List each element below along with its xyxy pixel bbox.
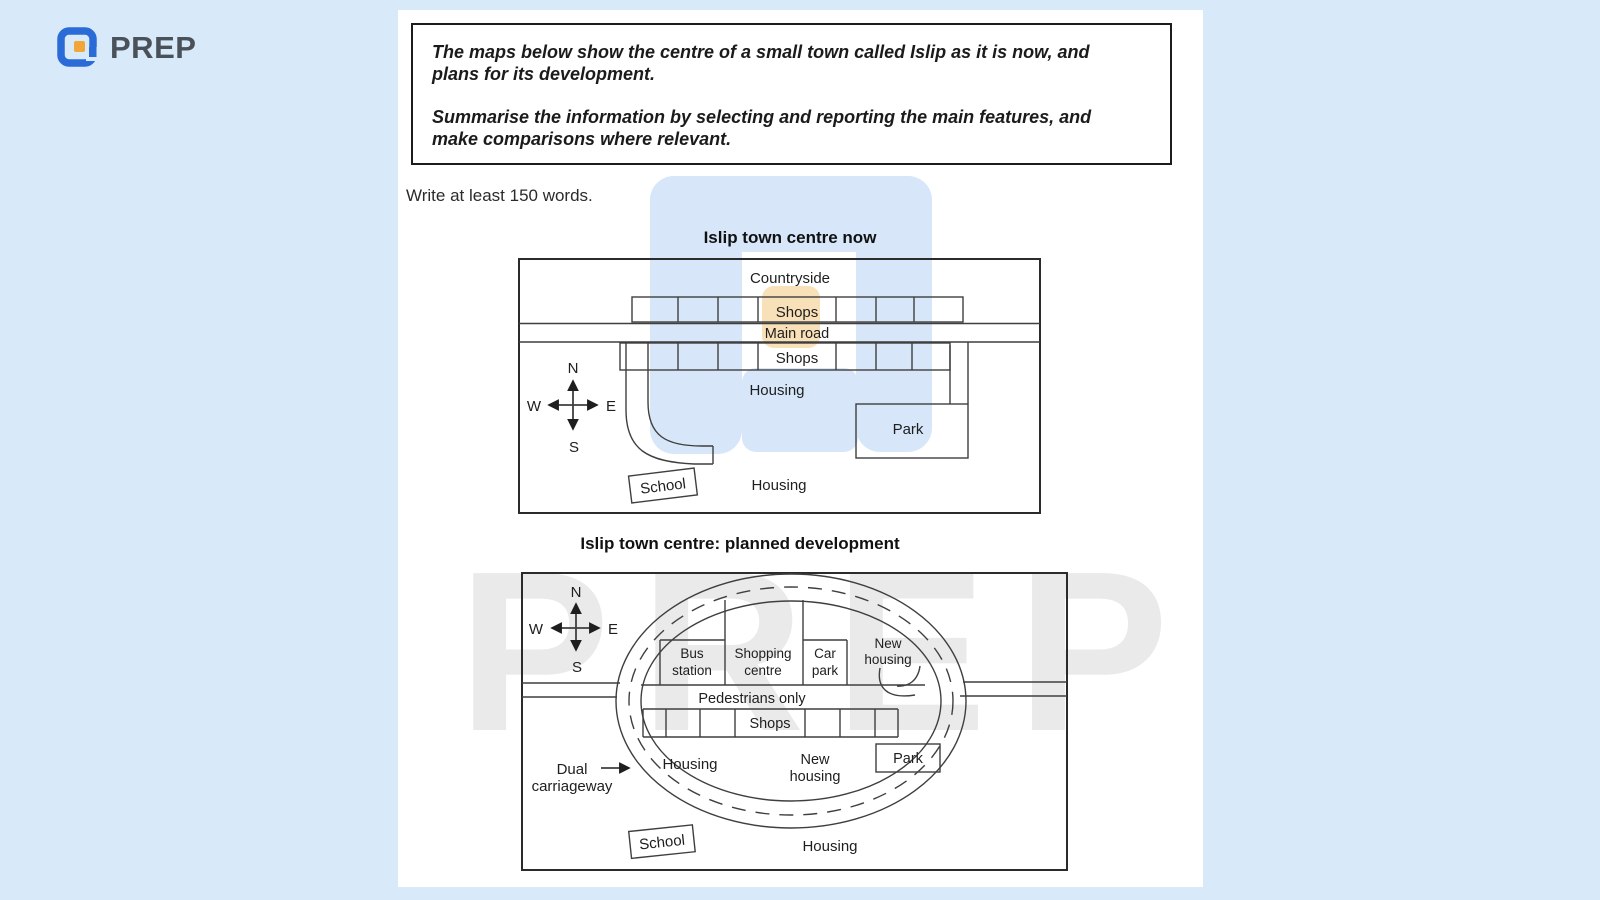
prompt-line: plans for its development. [432,63,1148,85]
brand-logo[interactable]: PREP [56,26,196,70]
pedestrians-only-label: Pedestrians only [698,691,806,707]
dual-carriageway-label: carriageway [532,778,613,795]
map-now-figure: Countryside Shops Main road Shops Park S… [505,250,1055,520]
new-housing-north-label: housing [864,652,911,667]
school-building: School [629,825,695,859]
compass-s: S [572,659,582,676]
housing-label: Housing [662,756,717,773]
shopping-centre-label: Shopping [734,646,791,661]
compass-n: N [568,360,579,377]
park-label: Park [893,751,924,767]
prompt-line: make comparisons where relevant. [432,128,1148,150]
housing-south-label: Housing [802,838,857,855]
bus-station-label: Bus [680,646,704,661]
shops-south-label: Shops [776,350,819,367]
curved-side-road [626,342,713,464]
countryside-label: Countryside [750,270,830,287]
map-now-title: Islip town centre now [704,228,877,248]
task-prompt-box: The maps below show the centre of a smal… [411,23,1172,165]
compass-e: E [608,621,618,638]
bus-station-label: station [672,663,712,678]
new-housing-south-label: housing [790,769,841,785]
housing-mid-label: Housing [749,382,804,399]
school-label: School [638,832,685,854]
logo-right-tick [89,47,97,57]
shops-label: Shops [749,716,790,732]
school-building: School [629,468,698,503]
school-label: School [639,475,687,497]
compass-w: W [527,398,542,415]
map-planned-title: Islip town centre: planned development [580,534,899,554]
map-planned-border [522,573,1067,870]
park-label: Park [893,421,924,438]
map-planned-figure: Bus station Shopping centre Car park New… [510,560,1075,878]
new-housing-north-label: New [874,636,901,651]
dual-carriageway-label: Dual [557,761,588,778]
housing-south-label: Housing [751,477,806,494]
ielts-task-page: { "page": { "colors": { "background": "#… [0,0,1600,900]
prompt-line: The maps below show the centre of a smal… [432,41,1148,63]
park-access-road [950,342,968,404]
shops-north-label: Shops [776,304,819,321]
compass-e: E [606,398,616,415]
brand-name: PREP [110,30,196,66]
new-housing-access-road [879,666,920,696]
main-road-label: Main road [765,326,829,342]
car-park-label: park [812,663,839,678]
compass-s: S [569,439,579,456]
new-housing-south-label: New [800,752,830,768]
prompt-line: Summarise the information by selecting a… [432,106,1148,128]
compass-n: N [571,584,582,601]
compass-rose: N S W E [529,584,618,676]
word-count-instruction: Write at least 150 words. [406,186,593,206]
compass-w: W [529,621,544,638]
prep-logo-icon [56,26,102,70]
car-park-label: Car [814,646,836,661]
compass-rose: N S W E [527,360,616,456]
shopping-centre-label: centre [744,663,782,678]
logo-orange-dot [74,41,85,52]
